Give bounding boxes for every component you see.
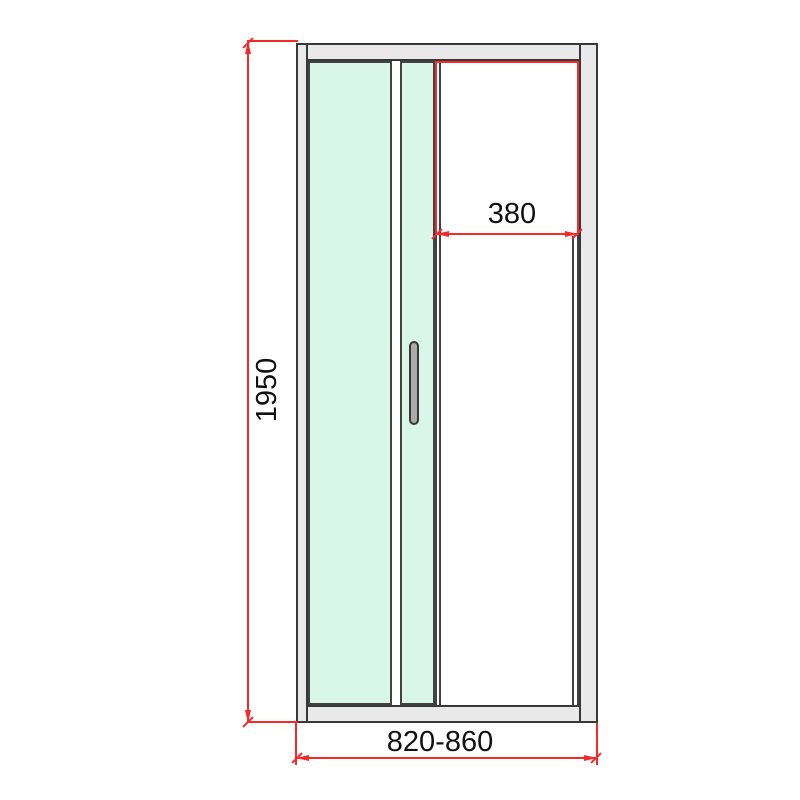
opening-dimension-ext-right — [577, 61, 579, 235]
opening-dimension-line — [436, 233, 578, 235]
frame-top-rail — [306, 43, 581, 61]
opening-dimension-label: 380 — [452, 199, 572, 229]
height-dimension-line — [247, 41, 249, 723]
drawing-canvas: 1950 380 820-860 — [0, 0, 800, 800]
door-edge-line-right-inner — [572, 236, 574, 705]
width-dimension-label: 820-860 — [340, 727, 540, 757]
frame-bottom-rail — [306, 705, 581, 723]
height-dimension-leader-top — [247, 40, 298, 42]
opening-dimension-ext-left — [435, 61, 437, 235]
height-dimension-label: 1950 — [252, 330, 282, 450]
door-handle — [409, 341, 419, 425]
frame-right-profile — [579, 43, 598, 723]
opening-dimension-top-line — [436, 61, 579, 63]
fixed-glass-panel — [308, 61, 392, 705]
frame-left-profile — [296, 43, 308, 723]
door-edge-line-left-inner — [439, 61, 441, 705]
height-dimension-leader-bottom — [247, 721, 298, 723]
